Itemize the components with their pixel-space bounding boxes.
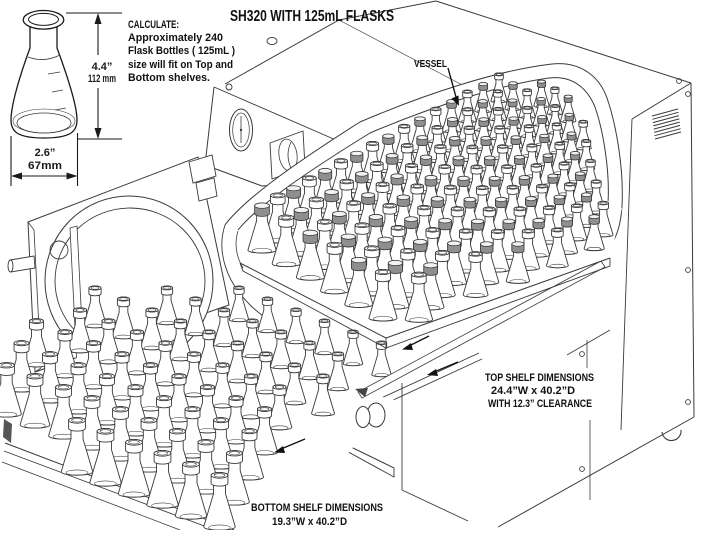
svg-text:112 mm: 112 mm [88,73,116,85]
svg-text:TOP SHELF DIMENSIONS: TOP SHELF DIMENSIONS [485,372,594,384]
svg-text:SH320 WITH 125mL FLASKS: SH320 WITH 125mL FLASKS [230,8,394,25]
svg-text:Bottom shelves.: Bottom shelves. [128,72,210,84]
svg-text:2.6”: 2.6” [35,147,56,159]
svg-text:4.4”: 4.4” [92,61,113,73]
svg-text:WITH 12.3” CLEARANCE: WITH 12.3” CLEARANCE [488,398,592,410]
svg-text:19.3”W x 40.2”D: 19.3”W x 40.2”D [272,516,347,528]
svg-text:size will fit on Top and: size will fit on Top and [128,59,233,71]
svg-text:CALCULATE:: CALCULATE: [128,19,179,31]
svg-text:BOTTOM SHELF DIMENSIONS: BOTTOM SHELF DIMENSIONS [251,502,383,514]
svg-text:Approximately 240: Approximately 240 [128,32,223,44]
svg-text:24.4”W x 40.2”D: 24.4”W x 40.2”D [491,385,575,397]
svg-text:VESSEL: VESSEL [414,58,447,70]
svg-text:Flask Bottles ( 125mL ): Flask Bottles ( 125mL ) [128,45,235,57]
svg-text:67mm: 67mm [28,160,62,172]
